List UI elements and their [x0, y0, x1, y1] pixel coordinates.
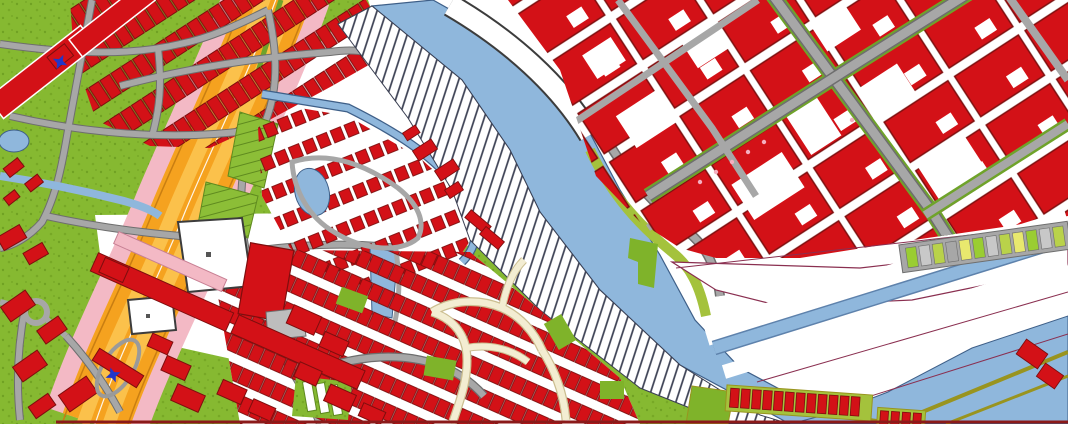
map-viewport[interactable]: GIS cadastral base map viewer showing an… [0, 0, 1068, 424]
park-pond [0, 130, 29, 152]
building-glyph [206, 252, 211, 257]
map-border-line [56, 421, 1068, 424]
map-canvas[interactable]: GIS cadastral base map viewer showing an… [0, 0, 1068, 424]
building-glyph-2 [146, 314, 150, 318]
